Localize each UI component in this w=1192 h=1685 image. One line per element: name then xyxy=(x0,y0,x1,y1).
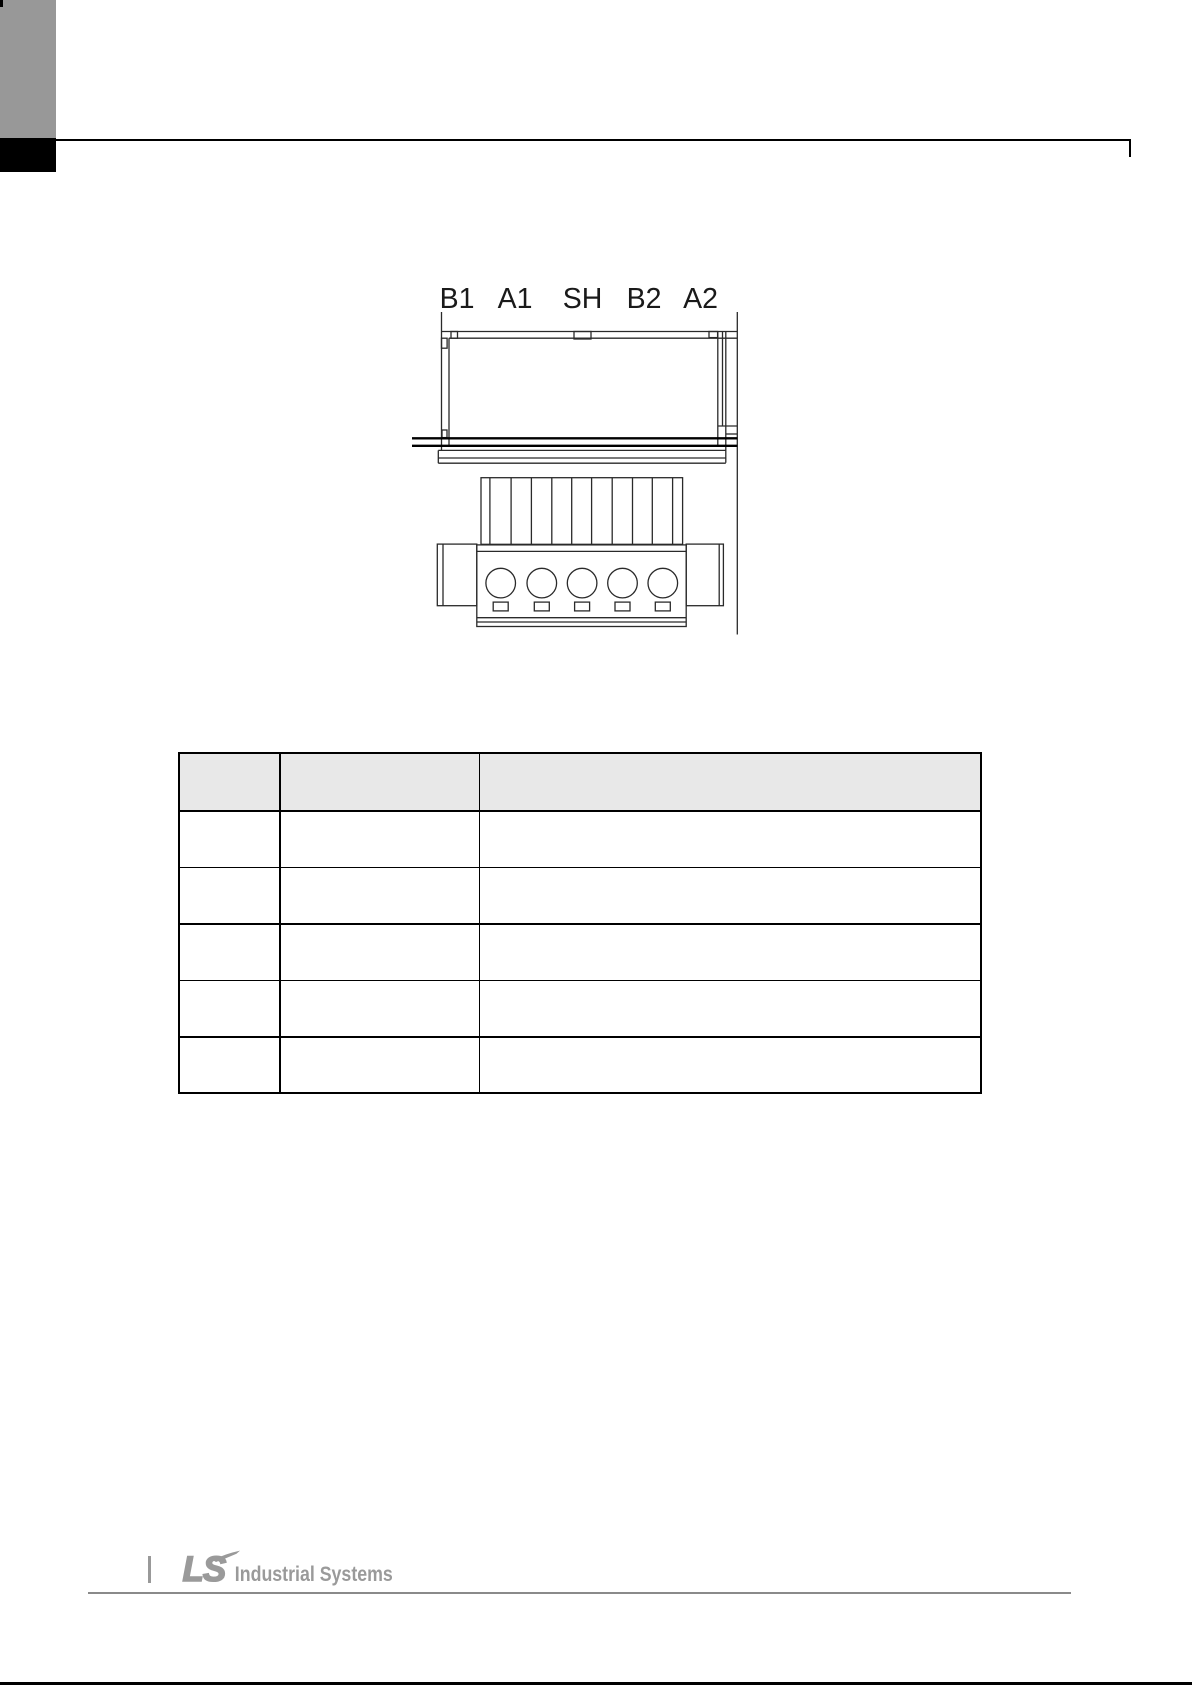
svg-text:Industrial Systems: Industrial Systems xyxy=(235,1563,393,1586)
svg-text:LS: LS xyxy=(183,1550,226,1589)
